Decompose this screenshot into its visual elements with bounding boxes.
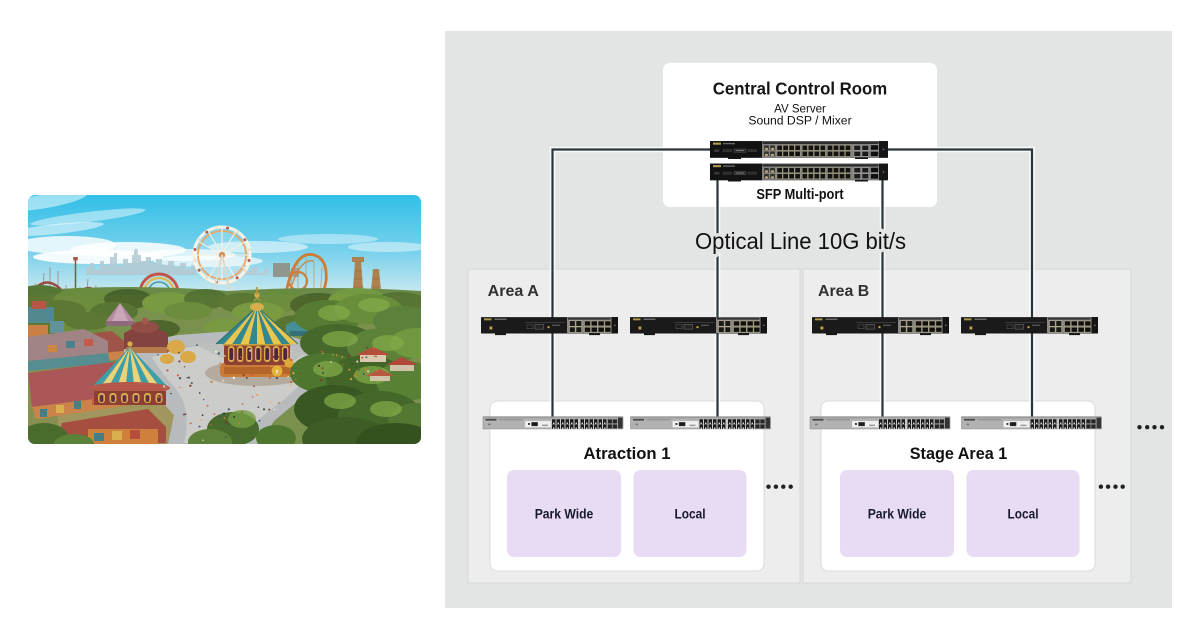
svg-text:Central Control Room: Central Control Room [713,79,888,99]
svg-text:Optical Line 10G bit/s: Optical Line 10G bit/s [695,228,906,254]
svg-text:Area B: Area B [818,283,869,300]
svg-text:Park Wide: Park Wide [535,507,594,522]
svg-text:Atraction 1: Atraction 1 [584,444,671,463]
svg-text:Area A: Area A [488,283,540,300]
svg-text:Stage Area 1: Stage Area 1 [910,444,1008,463]
svg-text:Local: Local [1008,507,1039,522]
svg-text:Sound DSP / Mixer: Sound DSP / Mixer [748,116,851,128]
svg-text:SFP Multi-port: SFP Multi-port [756,187,843,203]
svg-text:AV Server: AV Server [774,104,826,116]
svg-text:Park Wide: Park Wide [868,507,927,522]
svg-text:Local: Local [675,507,706,522]
